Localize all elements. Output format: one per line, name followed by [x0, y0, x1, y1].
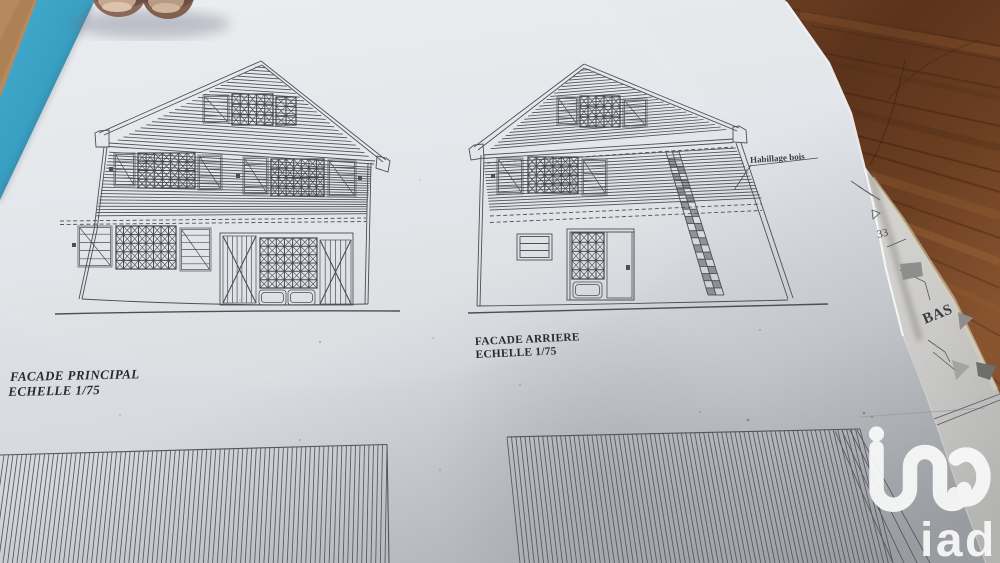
svg-text:ECHELLE 1/75: ECHELLE 1/75: [7, 382, 100, 399]
svg-text:iad: iad: [920, 514, 997, 563]
svg-text:FACADE PRINCIPAL: FACADE PRINCIPAL: [9, 366, 140, 384]
